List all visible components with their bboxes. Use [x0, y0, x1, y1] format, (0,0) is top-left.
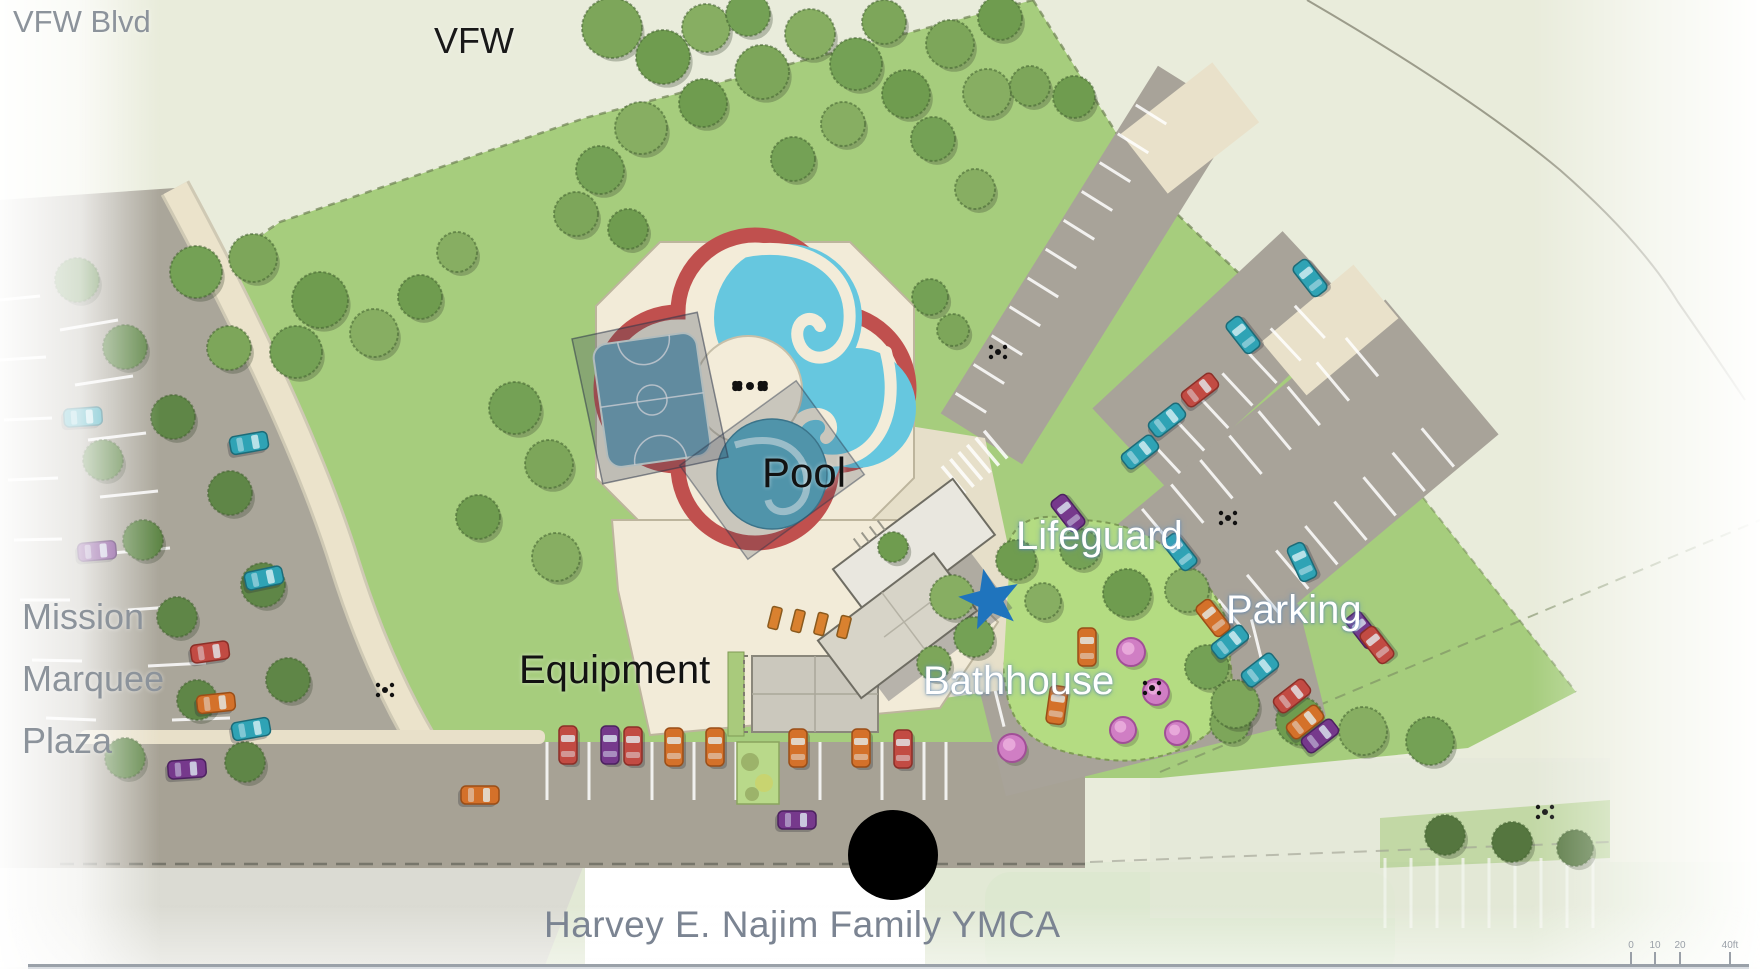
label-vfw-blvd: VFW Blvd: [13, 5, 151, 38]
site-plan-artwork: [0, 0, 1760, 978]
scale-baseline-shadow: [28, 967, 1749, 969]
caption-ymca: Harvey E. Najim Family YMCA: [544, 905, 1061, 945]
site-plan: VFW Blvd VFW Pool Lifeguard Parking Equi…: [0, 0, 1760, 978]
label-vfw: VFW: [434, 22, 514, 61]
label-bathhouse: Bathhouse: [923, 660, 1114, 703]
label-lifeguard: Lifeguard: [1016, 515, 1183, 558]
label-parking: Parking: [1226, 589, 1362, 632]
label-pool: Pool: [762, 450, 846, 495]
entrance-point-dot: [848, 810, 938, 900]
label-equipment: Equipment: [519, 649, 710, 692]
label-mission-marquee-plaza: Mission Marquee Plaza: [22, 586, 164, 772]
